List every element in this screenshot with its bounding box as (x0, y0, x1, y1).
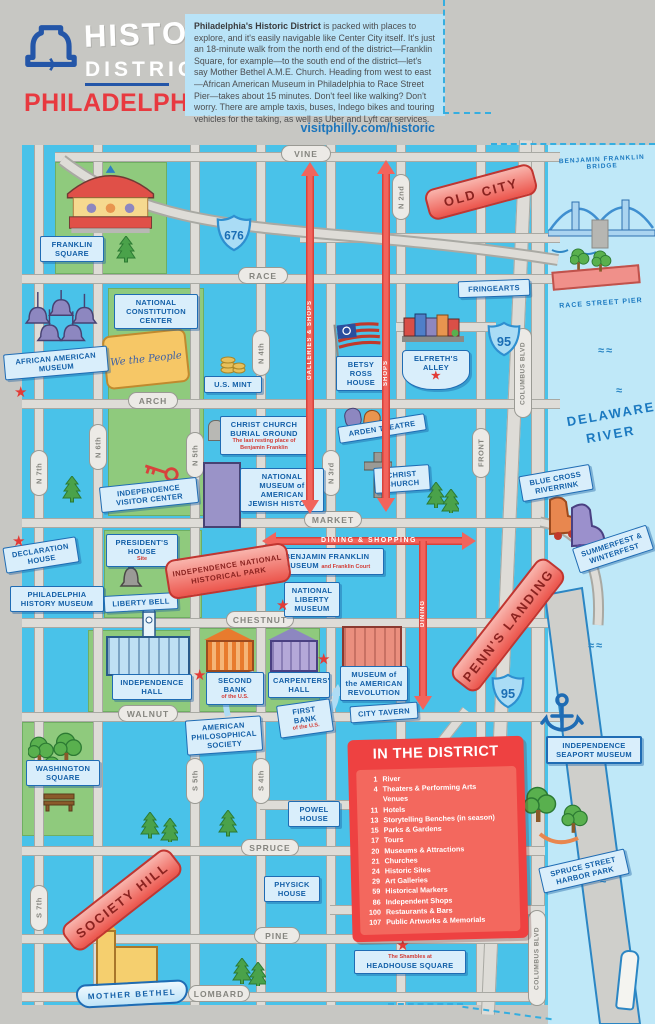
left-margin (0, 145, 22, 1024)
star-am-revolution: ★ (317, 652, 330, 667)
intro-text: is packed with places to explore, and it… (194, 21, 435, 124)
street-label-front: FRONT (472, 428, 490, 478)
street-label-spruce: SPRUCE (241, 839, 299, 856)
ben-franklin-bridge-icon (548, 178, 655, 258)
street-market (22, 518, 560, 528)
galleries-shops-label: GALLERIES & SHOPS (307, 300, 313, 380)
map-edge-dash (443, 112, 491, 114)
map-edge-dash (462, 1006, 551, 1021)
street-label-pine: PINE (254, 927, 300, 944)
hammock-trees-icon (522, 772, 592, 862)
dining-label: DINING (420, 600, 426, 627)
street-label-n3rd: N 3rd (322, 450, 340, 496)
poi-second-bank: SECOND BANKof the U.S. (206, 672, 264, 705)
arrowhead-down (414, 696, 432, 710)
coins-icon (220, 348, 246, 374)
i676-shield: 676 (216, 213, 252, 253)
in-the-district-legend: IN THE DISTRICT 1River 4Theaters & Perfo… (347, 736, 528, 943)
water-wave: ≈ (616, 385, 624, 397)
street-label-s4th: S 4th (252, 758, 270, 804)
legend-title: IN THE DISTRICT (348, 743, 524, 764)
shops-label: SHOPS (383, 360, 389, 386)
carousel-icon (58, 165, 163, 240)
street-label-columbus-s: COLUMBUS BLVD (528, 910, 546, 1006)
poi-national-liberty-museum: NATIONAL LIBERTY MUSEUM (284, 582, 340, 617)
pine-tree (441, 489, 459, 513)
legend-row: 4Theaters & Performing Arts Venues (361, 781, 513, 805)
race-pier-trees (570, 248, 616, 276)
poi-carpenters-hall: CARPENTERS' HALL (268, 672, 330, 698)
star-second-bank: ★ (193, 668, 206, 683)
poi-us-mint: U.S. MINT (204, 376, 262, 393)
street-label-vine: VINE (281, 145, 331, 162)
star-african-american-museum: ★ (14, 385, 27, 400)
arrowhead-down (377, 498, 395, 512)
poi-independence-hall: INDEPENDENCE HALL (112, 674, 192, 700)
logo-underline (85, 83, 169, 86)
poi-powel-house: POWEL HOUSE (288, 801, 340, 827)
historic-district-map: HISTORIC DISTRICT PHILADELPHIA Philadelp… (0, 0, 655, 1024)
street-label-arch: ARCH (128, 392, 178, 409)
intro-bold: Philadelphia's Historic District (194, 21, 321, 31)
i95-shield-north: 95 (487, 320, 521, 358)
poi-seaport-museum: INDEPENDENCE SEAPORT MUSEUM (546, 736, 642, 764)
independence-hall-building (106, 636, 190, 676)
street-label-lombard: LOMBARD (188, 985, 250, 1002)
am-revolution-building (342, 626, 402, 668)
poi-headhouse-square: The Shambles atHEADHOUSE SQUARE (354, 950, 466, 974)
shops-arrow (382, 173, 390, 499)
water-wave: ≈≈ (598, 345, 614, 357)
poi-fringearts: FRINGEARTS (458, 279, 531, 299)
street-label-n4th: N 4th (252, 330, 270, 376)
arrowhead-right (462, 532, 476, 550)
street-label-n7th: N 7th (30, 450, 48, 496)
svg-text:95: 95 (501, 686, 515, 701)
arrowhead-up (301, 162, 319, 176)
street-label-s5th: S 5th (186, 758, 204, 804)
intro-box: Philadelphia's Historic District is pack… (185, 14, 445, 116)
bench-icon (42, 792, 76, 812)
poi-franklin-square: FRANKLIN SQUARE (40, 236, 104, 262)
betsy-ross-flag-icon (332, 318, 384, 361)
poi-burial-ground: CHRIST CHURCH BURIAL GROUNDThe last rest… (220, 416, 308, 455)
liberty-bell-logo-icon (22, 8, 80, 90)
street-label-walnut: WALNUT (118, 705, 178, 722)
anchor-icon (540, 692, 584, 740)
star-national-liberty-museum: ★ (276, 598, 289, 613)
bottom-margin (0, 1005, 460, 1024)
carpenters-hall-building (270, 640, 318, 672)
street-label-n6th: N 6th (89, 424, 107, 470)
poi-physick-house: PHYSICK HOUSE (264, 876, 320, 902)
pine-tree (116, 236, 138, 264)
street-label-n5th: N 5th (186, 432, 204, 478)
pine-tree (62, 476, 84, 504)
map-edge-dash (491, 143, 655, 145)
poi-aps: AMERICAN PHILOSOPHICAL SOCIETY (185, 715, 263, 755)
arrowhead-down (301, 500, 319, 514)
elfreths-rowhouses-icon (402, 310, 464, 346)
scroll-text: We the People (110, 350, 183, 368)
arrowhead-up (377, 160, 395, 174)
street-arch (22, 399, 560, 409)
pine-tree (140, 812, 162, 840)
legend-panel: 1River 4Theaters & Performing Arts Venue… (356, 766, 520, 935)
svg-text:95: 95 (497, 334, 511, 349)
map-edge-dash (443, 0, 445, 112)
water-wave: ≈≈ (588, 640, 604, 652)
poi-betsy-ross-house: BETSY ROSS HOUSE (336, 356, 386, 391)
dining-shopping-label: DINING & SHOPPING (275, 537, 463, 544)
jewish-history-building (203, 462, 241, 528)
pine-tree (160, 818, 178, 842)
i95-shield-south: 95 (491, 672, 525, 710)
pine-tree (248, 962, 266, 986)
street-label-race: RACE (238, 267, 288, 284)
carpenters-roof (268, 628, 316, 640)
pine-tree (218, 810, 240, 838)
map-edge-dash (388, 1003, 463, 1005)
poi-constitution-center: NATIONAL CONSTITUTION CENTER (114, 294, 198, 329)
poi-washington-square: WASHINGTON SQUARE (26, 760, 100, 786)
star-declaration-house: ★ (12, 534, 25, 549)
street-label-n2nd: N 2nd (392, 174, 410, 220)
we-the-people-scroll: We the People (101, 328, 190, 390)
poi-elfreths-alley: ELFRETH'S ALLEY★ (402, 350, 470, 390)
second-bank-pediment (204, 628, 252, 640)
visitphilly-link[interactable]: visitphilly.com/historic (285, 121, 435, 135)
poi-philadelphia-history-museum: PHILADELPHIA HISTORY MUSEUM (10, 586, 104, 612)
street-label-s7th: S 7th (30, 885, 48, 931)
poi-am-revolution: MUSEUM of the AMERICAN REVOLUTION (340, 666, 408, 701)
svg-text:676: 676 (224, 229, 244, 242)
